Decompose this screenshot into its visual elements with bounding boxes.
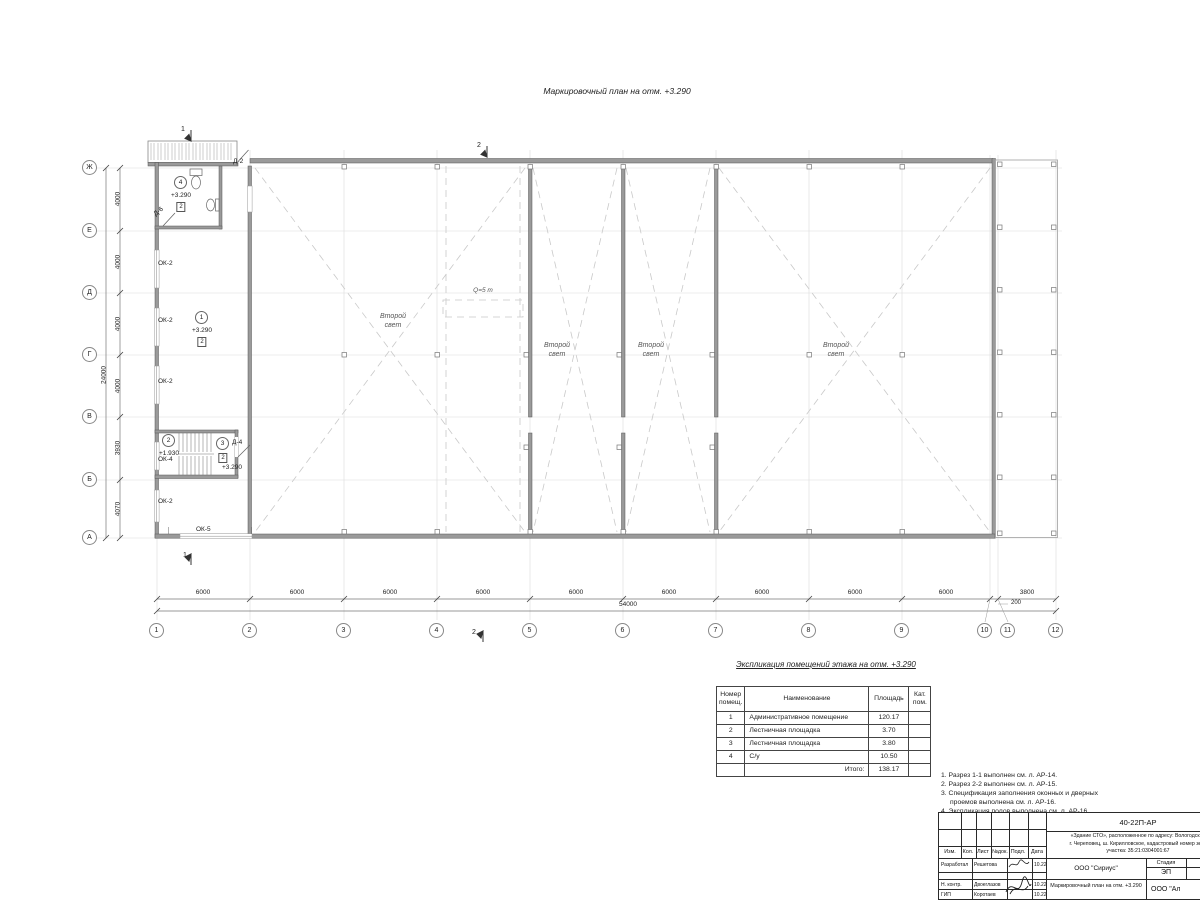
floor-type-mark: 2: [197, 337, 206, 347]
dim-span: 6000: [662, 590, 676, 597]
axis-column-3: 3: [336, 623, 351, 638]
axis-column-10: 10: [977, 623, 992, 638]
staff-date: 10.22: [1034, 892, 1047, 898]
cell-empty: [909, 764, 931, 777]
signature: [1002, 874, 1034, 900]
second-light-label: Второй свет: [817, 341, 855, 359]
window-mark-ok4: ОК-4: [158, 457, 173, 464]
organization-name-2: ООО "Ал: [1151, 886, 1181, 894]
signature: [1007, 858, 1031, 871]
drawing-sheet: Маркировочный план на отм. +3.290 1 2 3 …: [0, 0, 1200, 900]
room-number-4: 4: [174, 176, 187, 189]
cell-area: 3.70: [869, 725, 909, 738]
page-title: Маркировочный план на отм. +3.290: [543, 87, 690, 96]
section-mark-1-bottom: 1: [183, 552, 187, 559]
table-row: 1 Административное помещение 120.17: [717, 712, 931, 725]
col-header-name: Наименование: [745, 687, 869, 712]
axis-row-zh: Ж: [82, 160, 97, 175]
cell-name: С/у: [745, 751, 869, 764]
crane-capacity-label: Q=5 т: [473, 288, 493, 295]
dim-span: 6000: [569, 590, 583, 597]
dim-span: 4000: [115, 379, 122, 393]
stamp-col-kol: Кол.: [963, 849, 974, 855]
exterior-stair: [148, 141, 237, 163]
axis-row-d: Д: [82, 285, 97, 300]
toilet-tank: [190, 169, 202, 176]
note-line: 3. Спецификация заполнения оконных и две…: [941, 789, 1098, 798]
dimension-ticks: [103, 165, 1059, 614]
table-row: 3 Лестничная площадка 3.80: [717, 738, 931, 751]
col-header-room-number: Номер помещ.: [717, 687, 745, 712]
stamp-col-izm: Изм.: [944, 849, 956, 855]
table-header-row: Номер помещ. Наименование Площадь Кат. п…: [717, 687, 931, 712]
window-mark-ok2: ОК-2: [158, 318, 173, 325]
room-elevation: +3.290: [192, 327, 212, 334]
dim-span: 3800: [1020, 590, 1034, 597]
axis-column-5: 5: [522, 623, 537, 638]
stage-value: ЭП: [1161, 869, 1171, 877]
stamp-line: [939, 872, 1046, 873]
dim-span: 6000: [939, 590, 953, 597]
room-number-1: 1: [195, 311, 208, 324]
col-header-area: Площадь: [869, 687, 909, 712]
sanitary-fixtures: [190, 169, 219, 211]
axis-column-8: 8: [801, 623, 816, 638]
cell-num: 3: [717, 738, 745, 751]
door-mark-d2: Д-2: [233, 159, 243, 166]
staff-name: Решетова: [974, 862, 997, 868]
room-elevation: +1.930: [159, 450, 179, 457]
floor-plan-linework: [0, 0, 1200, 660]
floor-type-mark: 2: [218, 453, 227, 463]
door-mark-d4: Д-4: [232, 440, 242, 447]
stamp-col-dok: №док.: [992, 849, 1008, 855]
axis-column-1: 1: [149, 623, 164, 638]
stamp-line: [939, 846, 1046, 847]
col-header-category: Кат. пом.: [909, 687, 931, 712]
cell-cat: [909, 751, 931, 764]
axis-row-v: В: [82, 409, 97, 424]
sink: [207, 199, 215, 211]
note-line: проемов выполнена см. л. АР-16.: [950, 798, 1056, 807]
staff-date: 10.22: [1034, 882, 1047, 888]
cell-empty: [717, 764, 745, 777]
organization-name: ООО "Сириус": [1074, 865, 1118, 873]
stamp-line: [1146, 867, 1200, 868]
dim-span: 4000: [115, 317, 122, 331]
cell-cat: [909, 712, 931, 725]
room-number-2: 2: [162, 434, 175, 447]
note-line: 2. Разрез 2-2 выполнен см. л. АР-15.: [941, 780, 1057, 789]
window-openings: [154, 186, 252, 539]
grid-lines: [95, 150, 1062, 620]
dim-span: 3930: [115, 441, 122, 455]
staff-role: Н. контр.: [941, 882, 962, 888]
cell-area: 3.80: [869, 738, 909, 751]
cell-cat: [909, 725, 931, 738]
cell-num: 4: [717, 751, 745, 764]
axis-row-g: Г: [82, 347, 97, 362]
cell-area: 10.50: [869, 751, 909, 764]
room-elevation: +3.290: [171, 192, 191, 199]
section-mark-2-bottom: 2: [472, 629, 476, 636]
document-number: 40-22П-АР: [1119, 818, 1156, 827]
room-elevation: +3.290: [222, 464, 242, 471]
table-row: 2 Лестничная площадка 3.70: [717, 725, 931, 738]
total-value: 138.17: [869, 764, 909, 777]
project-description-line: участка: 35:21:0304001:67: [1106, 848, 1169, 854]
staff-name: Коротаев: [974, 892, 996, 898]
dim-span: 6000: [196, 590, 210, 597]
cell-name: Административное помещение: [745, 712, 869, 725]
toilet-bowl: [192, 176, 201, 189]
axis-column-11: 11: [1000, 623, 1015, 638]
stamp-line: [939, 829, 1046, 830]
stamp-col-list: Лист: [977, 849, 989, 855]
staff-role: Разработал: [941, 862, 968, 868]
dim-span: 6000: [290, 590, 304, 597]
window-mark-ok5: ОК-5: [196, 527, 211, 534]
table-row: 4 С/у 10.50: [717, 751, 931, 764]
dim-span: 6000: [383, 590, 397, 597]
axis-column-7: 7: [708, 623, 723, 638]
staff-role: ГИП: [941, 892, 951, 898]
project-description-line: г. Череповец, ш. Кирилловское, кадастров…: [1070, 841, 1200, 847]
cell-num: 2: [717, 725, 745, 738]
dim-span: 6000: [476, 590, 490, 597]
cell-name: Лестничная площадка: [745, 725, 869, 738]
second-light-label: Второй свет: [374, 312, 412, 330]
axis-column-9: 9: [894, 623, 909, 638]
axis-leaders: [985, 599, 1008, 622]
stamp-line: [939, 879, 1200, 880]
dim-span: 4000: [115, 192, 122, 206]
dim-span: 4070: [115, 502, 122, 516]
stamp-line: [1028, 813, 1029, 858]
dim-span: 4000: [115, 255, 122, 269]
cell-cat: [909, 738, 931, 751]
axis-row-a: А: [82, 530, 97, 545]
open-annex-outline: [996, 160, 1058, 538]
staff-name: Двоеглазов: [974, 882, 1001, 888]
dim-span: 200: [1011, 600, 1021, 606]
dim-total-vertical: 24000: [101, 366, 108, 384]
column-markers: [342, 162, 1056, 536]
stamp-line: [1046, 831, 1200, 832]
second-light-label: Второй свет: [632, 341, 670, 359]
note-line: 1. Разрез 1-1 выполнен см. л. АР-14.: [941, 771, 1057, 780]
stamp-line: [1186, 858, 1187, 879]
cell-name: Лестничная площадка: [745, 738, 869, 751]
axis-row-b: Б: [82, 472, 97, 487]
second-light-label: Второй свет: [538, 341, 576, 359]
axis-column-12: 12: [1048, 623, 1063, 638]
window-mark-ok2: ОК-2: [158, 499, 173, 506]
section-mark-2: 2: [477, 142, 481, 149]
explication-table: Номер помещ. Наименование Площадь Кат. п…: [716, 686, 931, 777]
explication-title: Экспликация помещений этажа на отм. +3.2…: [736, 661, 916, 669]
axis-column-2: 2: [242, 623, 257, 638]
cell-num: 1: [717, 712, 745, 725]
cell-area: 120.17: [869, 712, 909, 725]
window-mark-ok2: ОК-2: [158, 261, 173, 268]
axis-column-4: 4: [429, 623, 444, 638]
dim-total-horizontal: 54000: [619, 602, 637, 609]
floor-type-mark: 2: [176, 202, 185, 212]
total-label: Итого:: [745, 764, 869, 777]
staff-date: 10.22: [1034, 862, 1047, 868]
axis-row-e: Е: [82, 223, 97, 238]
window-mark-ok2: ОК-2: [158, 379, 173, 386]
title-block: Изм. Кол. Лист №док. Подл. Дата Разработ…: [938, 812, 1200, 900]
table-total-row: Итого: 138.17: [717, 764, 931, 777]
stamp-col-data: Дата: [1031, 849, 1043, 855]
project-description-line: «Здание СТО», расположенное по адресу: В…: [1071, 833, 1200, 839]
section-mark-1: 1: [181, 126, 185, 133]
stamp-col-podl: Подл.: [1011, 849, 1026, 855]
section-arrows: [185, 130, 487, 642]
room-number-3: 3: [216, 437, 229, 450]
stair-treads: [178, 433, 214, 475]
crane-zone: [443, 300, 523, 317]
axis-column-6: 6: [615, 623, 630, 638]
stamp-line: [939, 858, 1200, 859]
dim-span: 6000: [755, 590, 769, 597]
stage-label: Стадия: [1157, 860, 1176, 867]
dim-span: 6000: [848, 590, 862, 597]
stamp-drawing-title: Маркировочный план на отм. +3.290: [1049, 883, 1143, 889]
